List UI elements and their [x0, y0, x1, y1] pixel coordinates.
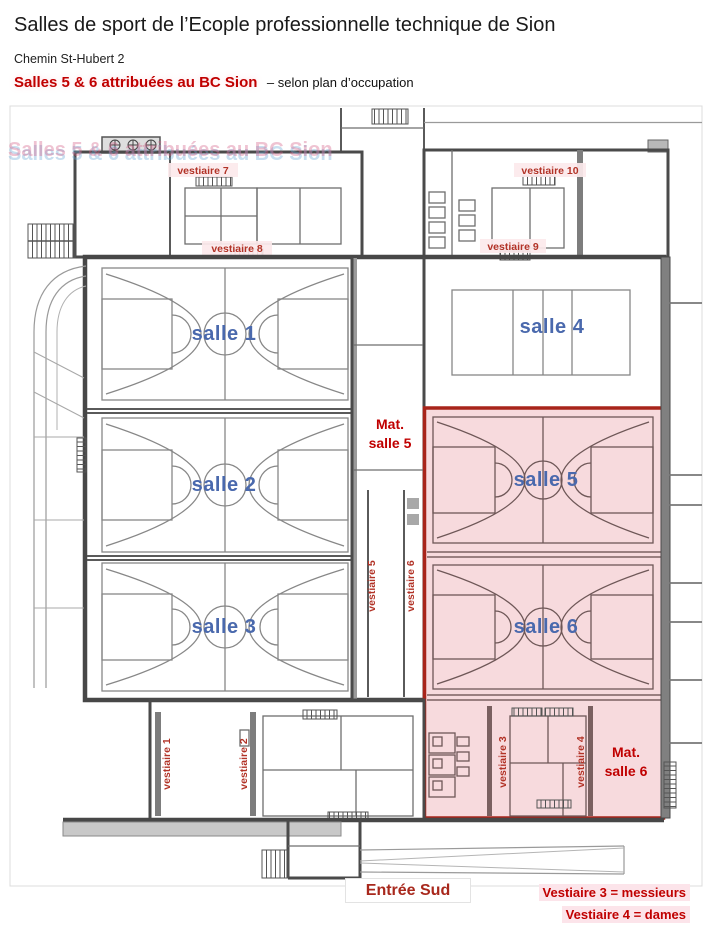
mat-salle-5-label: Mat. salle 5	[369, 416, 412, 451]
vestiaire-1-label: vestiaire 1	[161, 738, 173, 790]
wing-bottom-left: vestiaire 1 vestiaire 2	[150, 700, 424, 821]
salle-2-label: salle 2	[192, 474, 257, 496]
top-structures	[102, 108, 702, 153]
wing-top-right: vestiaire 10 vestiaire 9	[424, 150, 668, 260]
salle-6-label: salle 6	[514, 616, 579, 638]
mat-salle-6-line1: Mat.	[612, 744, 640, 760]
court-salle-4: salle 4	[452, 290, 630, 375]
entrance-sud-label: Entrée Sud	[345, 878, 471, 903]
corridor-vestiaires-5-6: vestiaire 5 vestiaire 6	[353, 345, 423, 697]
court-salle-2: salle 2	[102, 418, 348, 552]
bottom-edge	[63, 820, 664, 836]
salle-3-label: salle 3	[192, 616, 257, 638]
salle-5-label: salle 5	[514, 469, 579, 491]
stairs-south-entrance	[262, 850, 288, 878]
right-outer-wall	[661, 257, 670, 818]
access-ramp	[360, 846, 624, 874]
vestiaire-7-label: vestiaire 7	[177, 165, 229, 177]
floor-plan: vestiaire 7 vestiaire 8 vestiaire 10 ves…	[0, 0, 713, 926]
stairs-right-bottom	[664, 762, 676, 808]
vestiaire-9-label: vestiaire 9	[487, 241, 539, 253]
mat-salle-5-line2: salle 5	[369, 435, 412, 451]
left-ramp	[28, 224, 86, 688]
document-page: Salles de sport de l’Ecople professionne…	[0, 0, 713, 926]
mat-salle-5-line1: Mat.	[376, 416, 404, 432]
vestiaire-8-label: vestiaire 8	[211, 243, 263, 255]
vestiaire-10-label: vestiaire 10	[521, 165, 578, 177]
court-salle-1: salle 1	[102, 268, 348, 400]
mat-salle-6-line2: salle 6	[605, 763, 648, 779]
legend-note-vestiaire-4: Vestiaire 4 = dames	[562, 906, 690, 923]
vestiaire-3-label: vestiaire 3	[497, 736, 509, 788]
vestiaire-2-label: vestiaire 2	[238, 738, 250, 790]
vestiaire-5-label: vestiaire 5	[366, 560, 378, 612]
salle-1-label: salle 1	[192, 323, 257, 345]
vestiaire-4-label: vestiaire 4	[575, 736, 587, 788]
salle-4-label: salle 4	[520, 316, 585, 338]
wing-top-left: vestiaire 7 vestiaire 8	[75, 152, 362, 258]
stairs-top-center	[372, 109, 408, 124]
vestiaire-6-label: vestiaire 6	[405, 560, 417, 612]
legend-note-vestiaire-3: Vestiaire 3 = messieurs	[539, 884, 690, 901]
court-salle-3: salle 3	[102, 563, 348, 691]
